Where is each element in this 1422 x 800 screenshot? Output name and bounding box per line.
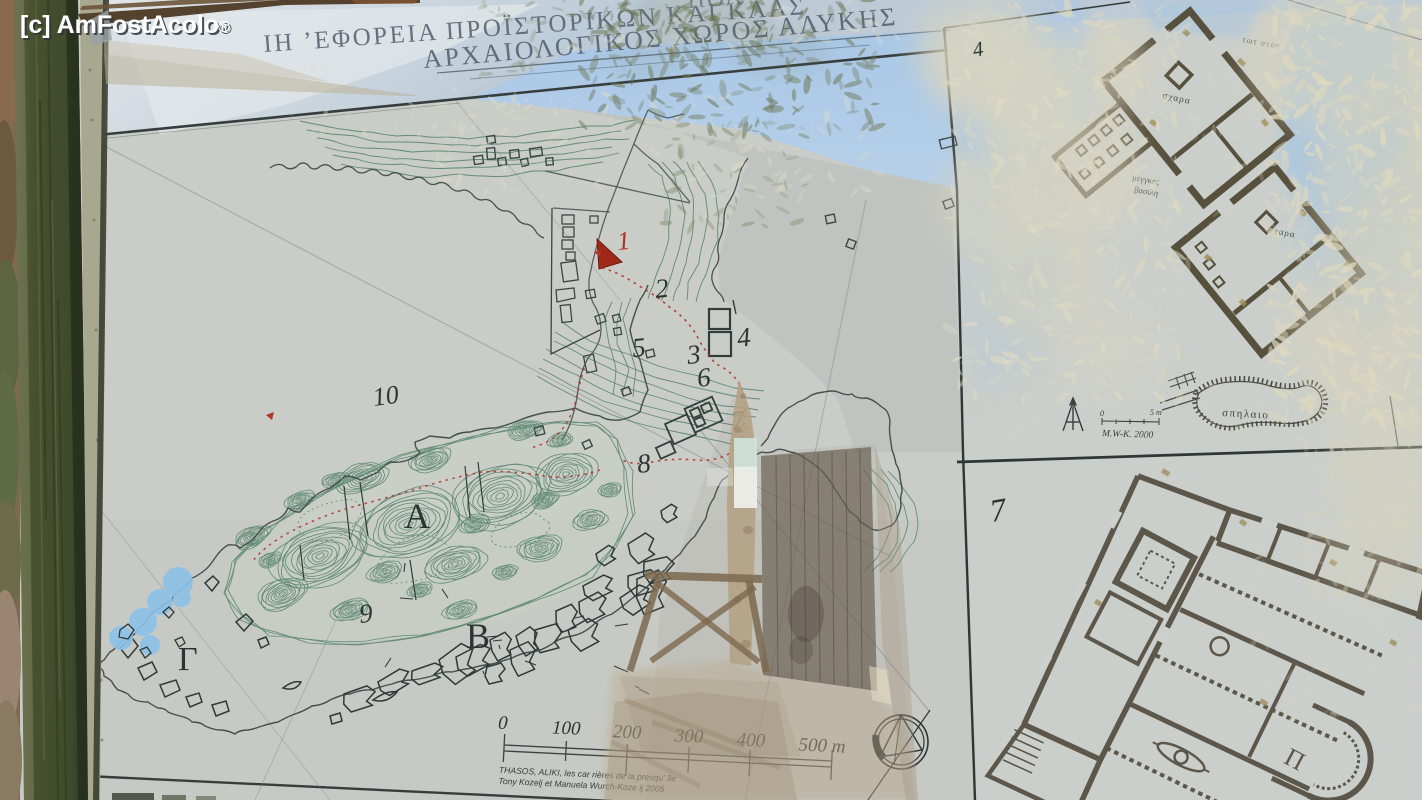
- svg-text:100: 100: [552, 717, 582, 739]
- svg-text:Γ: Γ: [178, 641, 198, 678]
- svg-text:0: 0: [498, 713, 509, 734]
- svg-text:®: ®: [218, 19, 230, 36]
- svg-text:B: B: [466, 616, 490, 656]
- svg-text:10: 10: [371, 380, 401, 412]
- svg-text:A: A: [404, 496, 430, 536]
- svg-text:[c] AmFostAcolo: [c] AmFostAcolo: [20, 11, 219, 39]
- svg-text:σπηλαιο: σπηλαιο: [1222, 407, 1270, 421]
